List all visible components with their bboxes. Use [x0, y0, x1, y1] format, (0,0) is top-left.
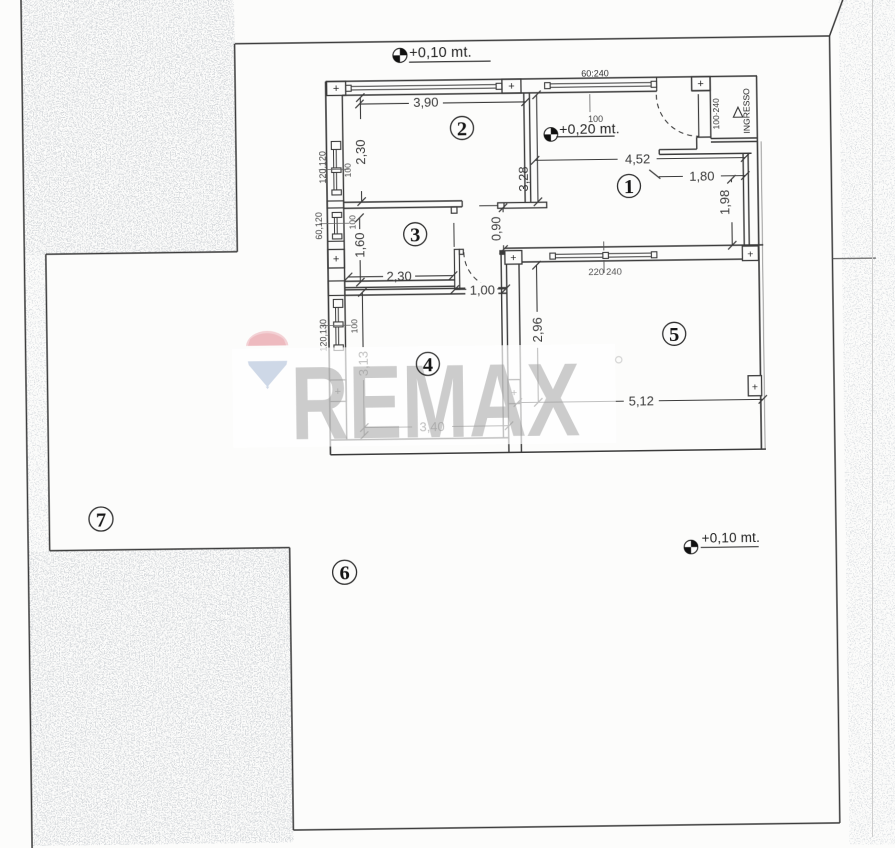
svg-text:+: + — [333, 254, 340, 266]
svg-text:2,30: 2,30 — [353, 139, 368, 165]
svg-text:+: + — [508, 81, 515, 93]
svg-text:2,96: 2,96 — [530, 317, 545, 343]
svg-text:6: 6 — [339, 562, 350, 584]
svg-text:4,52: 4,52 — [625, 151, 651, 166]
svg-text:+: + — [752, 381, 758, 393]
svg-text:REMAX: REMAX — [290, 342, 580, 462]
svg-text:+0,10 mt.: +0,10 mt. — [409, 45, 472, 62]
svg-text:1,60: 1,60 — [352, 232, 367, 258]
svg-text:0,90: 0,90 — [489, 217, 503, 242]
svg-text:60,120: 60,120 — [314, 212, 324, 240]
svg-text:INGRESSO: INGRESSO — [741, 88, 752, 134]
svg-text:2,30: 2,30 — [386, 268, 412, 283]
svg-text:+: + — [697, 78, 704, 90]
svg-text:3: 3 — [410, 224, 421, 246]
svg-text:1: 1 — [624, 176, 635, 198]
svg-text:+0,10 mt.: +0,10 mt. — [701, 530, 760, 546]
svg-text:60:240: 60:240 — [581, 68, 609, 78]
svg-text:3,90: 3,90 — [413, 95, 439, 110]
svg-text:100: 100 — [343, 163, 353, 178]
svg-text:3,28: 3,28 — [516, 166, 531, 192]
svg-text:220 240: 220 240 — [588, 267, 622, 278]
svg-text:100: 100 — [347, 215, 357, 230]
svg-text:7: 7 — [96, 509, 107, 531]
svg-text:100·240: 100·240 — [711, 98, 721, 130]
svg-text:+: + — [747, 248, 753, 260]
svg-text:+: + — [510, 252, 516, 264]
svg-text:5: 5 — [669, 324, 680, 346]
svg-text:+: + — [333, 83, 340, 95]
svg-text:1,00: 1,00 — [470, 282, 496, 297]
svg-text:100: 100 — [349, 319, 359, 334]
svg-text:1,98: 1,98 — [717, 190, 732, 216]
svg-text:+0,20 mt.: +0,20 mt. — [559, 120, 620, 137]
svg-text:120,120: 120,120 — [317, 151, 327, 184]
svg-text:1,80: 1,80 — [689, 168, 715, 183]
svg-text:5,12: 5,12 — [629, 393, 655, 408]
svg-text:2: 2 — [457, 118, 468, 140]
svg-text:4: 4 — [423, 354, 434, 376]
